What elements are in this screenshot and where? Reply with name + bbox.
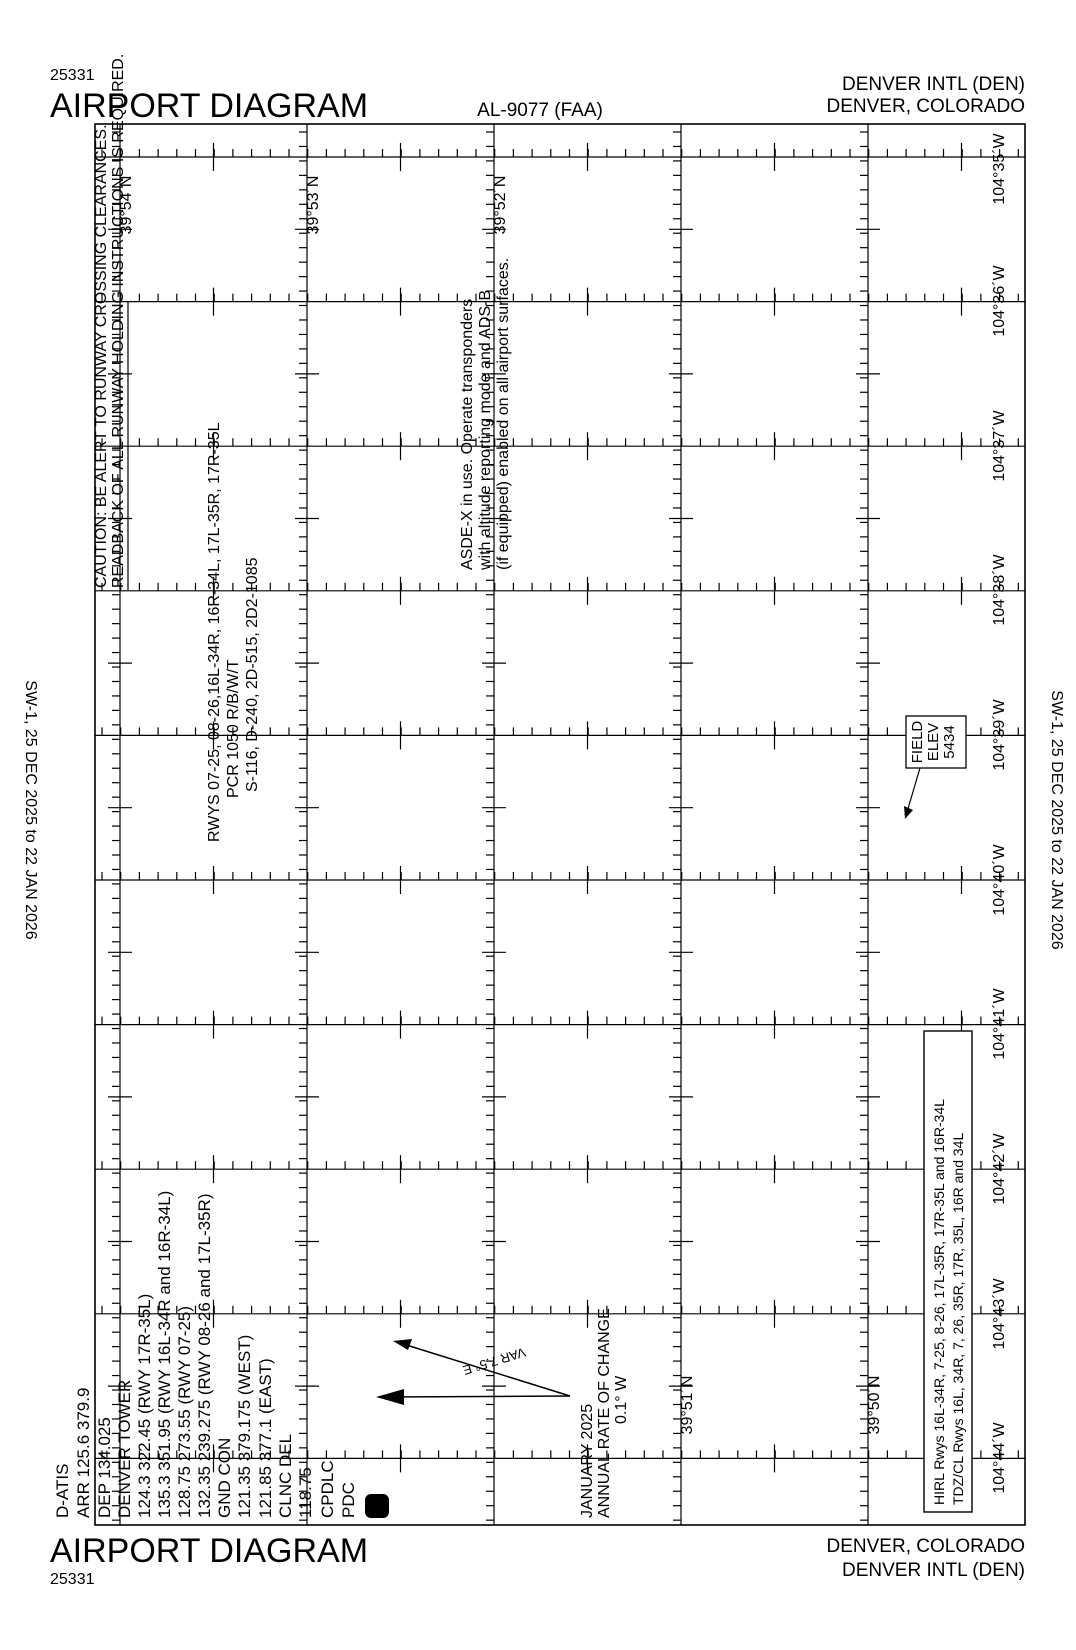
svg-text:39°51´N: 39°51´N xyxy=(679,1376,696,1435)
svg-text:121.85 377.1 (EAST): 121.85 377.1 (EAST) xyxy=(256,1358,275,1518)
svg-text:HIRL Rwys 16L-34R, 7-25, 8-26,: HIRL Rwys 16L-34R, 7-25, 8-26, 17L-35R, … xyxy=(931,1099,947,1505)
svg-text:104°36´W: 104°36´W xyxy=(991,264,1008,336)
svg-text:DENVER, COLORADO: DENVER, COLORADO xyxy=(827,1536,1025,1557)
svg-text:39°52´N: 39°52´N xyxy=(492,176,509,235)
svg-text:104°39´W: 104°39´W xyxy=(991,698,1008,770)
svg-text:(if equipped) enabled on all a: (if equipped) enabled on all airport sur… xyxy=(495,258,512,570)
svg-text:118.75: 118.75 xyxy=(296,1467,315,1518)
svg-text:DENVER, COLORADO: DENVER, COLORADO xyxy=(827,96,1025,117)
svg-text:DENVER INTL (DEN): DENVER INTL (DEN) xyxy=(842,74,1025,95)
svg-text:104°38´W: 104°38´W xyxy=(991,553,1008,625)
svg-text:ASDE-X in use. Operate transpo: ASDE-X in use. Operate transponders xyxy=(459,299,476,570)
svg-text:RWYS 07-25, 08-26,16L-34R, 16R: RWYS 07-25, 08-26,16L-34R, 16R-34L, 17L-… xyxy=(206,422,223,842)
svg-text:CPDLC: CPDLC xyxy=(318,1460,337,1518)
svg-text:S-116, D-240, 2D-515, 2D2-1085: S-116, D-240, 2D-515, 2D2-1085 xyxy=(244,557,261,792)
svg-text:121.35 379.175 (WEST): 121.35 379.175 (WEST) xyxy=(235,1335,254,1518)
svg-text:104°35´W: 104°35´W xyxy=(991,132,1008,204)
svg-text:AIRPORT DIAGRAM: AIRPORT DIAGRAM xyxy=(50,1532,368,1570)
svg-text:JANUARY 2025: JANUARY 2025 xyxy=(579,1404,596,1518)
svg-text:DENVER INTL (DEN): DENVER INTL (DEN) xyxy=(842,1560,1025,1581)
svg-text:104°42´W: 104°42´W xyxy=(991,1132,1008,1204)
svg-text:132.35 239.275 (RWY 08-26 and: 132.35 239.275 (RWY 08-26 and 17L-35R) xyxy=(195,1194,214,1519)
svg-text:128.75 273.55 (RWY 07-25): 128.75 273.55 (RWY 07-25) xyxy=(175,1306,194,1518)
svg-text:104°41´W: 104°41´W xyxy=(991,987,1008,1059)
svg-text:ELEV: ELEV xyxy=(925,723,942,761)
svg-text:104°40´W: 104°40´W xyxy=(991,843,1008,915)
svg-text:SW-1, 25 DEC 2025 to 22 JAN: SW-1, 25 DEC 2025 to 22 JAN 2026 xyxy=(22,680,39,940)
svg-text:GND CON: GND CON xyxy=(215,1438,234,1518)
svg-text:SW-1, 25 DEC 2025 to 22 JAN: SW-1, 25 DEC 2025 to 22 JAN 2026 xyxy=(1048,690,1065,950)
svg-text:with altitude reporting mode a: with altitude reporting mode and ADS-B xyxy=(477,290,494,571)
svg-text:READBACK OF ALL RUNWAY HOLDING: READBACK OF ALL RUNWAY HOLDING INSTRUCTI… xyxy=(110,54,127,588)
svg-text:AIRPORT DIAGRAM: AIRPORT DIAGRAM xyxy=(50,87,368,125)
svg-text:ANNUAL RATE OF CHANGE: ANNUAL RATE OF CHANGE xyxy=(596,1308,613,1518)
svg-text:D-ATIS: D-ATIS xyxy=(53,1464,72,1518)
svg-text:PCR 1050 R/B/W/T: PCR 1050 R/B/W/T xyxy=(225,659,242,798)
svg-text:DENVER TOWER: DENVER TOWER xyxy=(115,1380,134,1518)
svg-text:CLNC DEL: CLNC DEL xyxy=(276,1434,295,1518)
svg-text:FIELD: FIELD xyxy=(909,721,926,764)
svg-text:CAUTION: BE ALERT TO RUNWAY CR: CAUTION: BE ALERT TO RUNWAY CROSSING CLE… xyxy=(93,124,110,588)
svg-text:25331: 25331 xyxy=(50,67,95,84)
svg-text:25331: 25331 xyxy=(50,1571,95,1588)
svg-text:AL-9077 (FAA): AL-9077 (FAA) xyxy=(477,100,603,121)
svg-text:ARR 125.6 379.9: ARR 125.6 379.9 xyxy=(74,1388,93,1518)
svg-text:DEP 134.025: DEP 134.025 xyxy=(95,1417,114,1518)
svg-text:39°50´N: 39°50´N xyxy=(866,1376,883,1435)
svg-text:39°53´N: 39°53´N xyxy=(305,176,322,235)
svg-text:135.3 351.95 (RWY 16L-34R and: 135.3 351.95 (RWY 16L-34R and 16R-34L) xyxy=(155,1191,174,1518)
svg-text:104°44´W: 104°44´W xyxy=(991,1421,1008,1493)
svg-text:5434: 5434 xyxy=(941,725,958,758)
svg-text:D: D xyxy=(367,1500,387,1513)
svg-text:104°37´W: 104°37´W xyxy=(991,409,1008,481)
svg-text:PDC: PDC xyxy=(339,1482,358,1518)
svg-text:0.1° W: 0.1° W xyxy=(613,1375,630,1424)
svg-text:104°43´W: 104°43´W xyxy=(991,1277,1008,1349)
svg-text:TDZ/CL Rwys 16L, 34R, 7, 26, 3: TDZ/CL Rwys 16L, 34R, 7, 26, 35R, 17R, 3… xyxy=(950,1133,966,1505)
svg-text:124.3 322.45 (RWY 17R-35L): 124.3 322.45 (RWY 17R-35L) xyxy=(135,1294,154,1518)
